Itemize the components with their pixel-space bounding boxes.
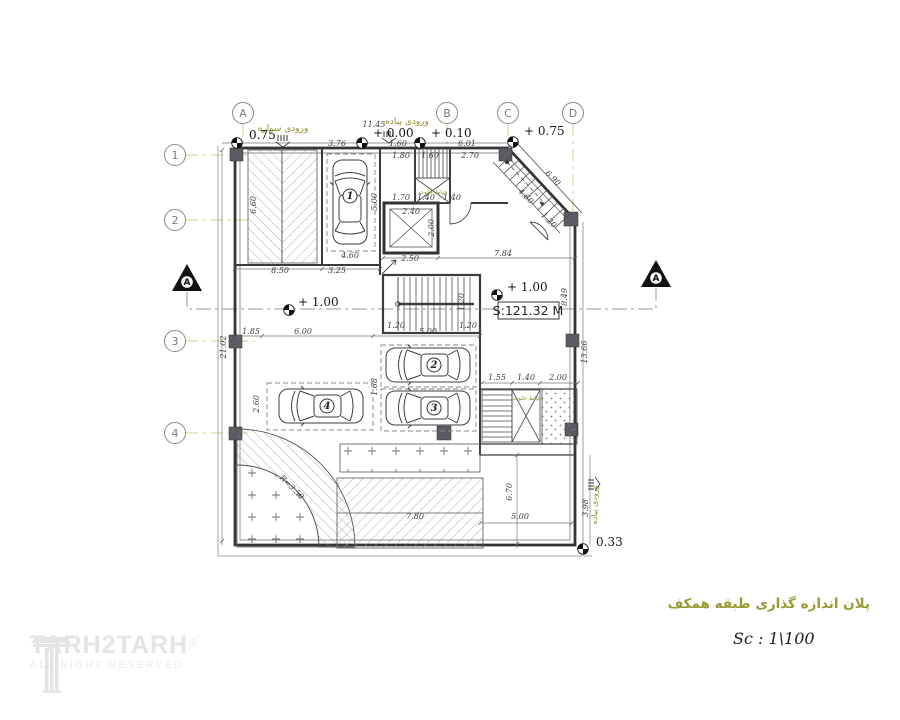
label-sec: A: [653, 274, 660, 284]
label-grid: 3: [172, 335, 179, 348]
label-dim: 1.40: [443, 193, 461, 202]
label-dim: 7.84: [494, 249, 512, 258]
label-grid: B: [443, 107, 451, 120]
label-dim: 1.60: [389, 139, 407, 148]
section-line-aa: [172, 260, 671, 309]
label-dim: 6.00: [294, 327, 312, 336]
label-grid: 4: [172, 427, 179, 440]
label-dim: 7.80: [406, 512, 424, 521]
label-dim: 1.80: [392, 151, 410, 160]
label-dim: 5.00: [370, 193, 379, 211]
label-dim: 13.66: [580, 341, 589, 364]
drawing-sheet: ABCD12340.75+ 0.00+ 0.10+ 0.75+ 1.00+ 1.…: [0, 0, 900, 720]
label-carnum: 2: [430, 360, 438, 371]
label-dim: 6.90: [543, 169, 562, 188]
label-level: + 1.00: [298, 295, 339, 309]
label-dim: 11.45: [363, 120, 386, 129]
label-dim: 5.00: [511, 512, 529, 521]
label-dim: 1.85: [242, 327, 260, 336]
label-dim: 5.00: [419, 327, 437, 336]
label-dim: 1.55: [488, 373, 506, 382]
label-dim: 2.40: [401, 207, 420, 216]
direction-arrow: [382, 260, 396, 274]
label-dim: 1.40: [517, 373, 535, 382]
label-dim: 2.00: [427, 219, 436, 238]
watermark: TARH2TARH® ALL RIGHT RESERVED: [30, 633, 198, 671]
stipple-area: [542, 389, 577, 444]
label-fa: ورودی سواره: [258, 124, 309, 134]
tarh2tarh-logo-icon: [30, 633, 72, 695]
label-dim: 1.60: [421, 151, 439, 160]
label-level: 0.33: [596, 535, 623, 549]
label-dim: 6.60: [249, 196, 258, 214]
label-dim: 6.70: [505, 483, 514, 501]
vehicle-ramp: [248, 150, 317, 263]
label-grid: 2: [172, 214, 179, 227]
label-dim: 1.70: [392, 193, 410, 202]
label-fa: ورودی پیاده: [590, 485, 599, 524]
label-dim: 2.60: [252, 395, 261, 414]
scale-label: Sc : 1\100: [733, 629, 853, 648]
label-dim: 1.20: [387, 321, 405, 330]
label-fa: حیاط خلوت: [512, 395, 542, 402]
label-carnum: 3: [431, 403, 438, 414]
label-level: + 0.10: [431, 126, 472, 140]
floor-plan-svg: ABCD12340.75+ 0.00+ 0.10+ 0.75+ 1.00+ 1.…: [0, 0, 900, 720]
label-carnum: 4: [324, 401, 331, 412]
registered-mark: ®: [188, 639, 198, 650]
label-dim: 21.02: [219, 336, 228, 360]
label-grid: 1: [172, 149, 179, 162]
plus-strip: [340, 444, 480, 472]
label-dim: 8.50: [271, 266, 289, 275]
label-dim: 1.20: [459, 321, 477, 330]
label-grid: C: [504, 107, 512, 120]
label-fa: ورودی پیاده: [385, 117, 429, 127]
label-dim: 3.76: [328, 139, 346, 148]
label-dim: 1.40: [417, 193, 435, 202]
label-level: + 0.75: [524, 124, 565, 138]
label-dim: 1.20: [457, 293, 466, 311]
door-lobby: [450, 203, 471, 224]
label-carnum: 1: [347, 191, 354, 202]
label-grid: A: [239, 107, 247, 120]
label-level: + 1.00: [507, 280, 548, 294]
label-dim: 2.50: [400, 254, 419, 263]
label-dim: 2.00: [548, 373, 567, 382]
label-dim: 3.98: [581, 499, 590, 517]
label-dim: 1.68: [370, 378, 379, 396]
label-area: S:121.32 M: [493, 303, 564, 318]
label-dim: 4.60: [340, 251, 359, 260]
stair-rear: [482, 390, 512, 442]
label-dim: 6.01: [458, 139, 476, 148]
label-dim: 2.70: [460, 151, 479, 160]
label-dim: 3.25: [328, 266, 346, 275]
door-stair-bottom: [530, 222, 548, 240]
plan-title: پلان اندازه گذاری طبقه همکف: [668, 596, 870, 612]
vehicle-entry-icon: [276, 135, 290, 147]
label-dim: 8.49: [560, 288, 569, 306]
label-grid: D: [569, 107, 577, 120]
label-sec: A: [184, 278, 191, 288]
